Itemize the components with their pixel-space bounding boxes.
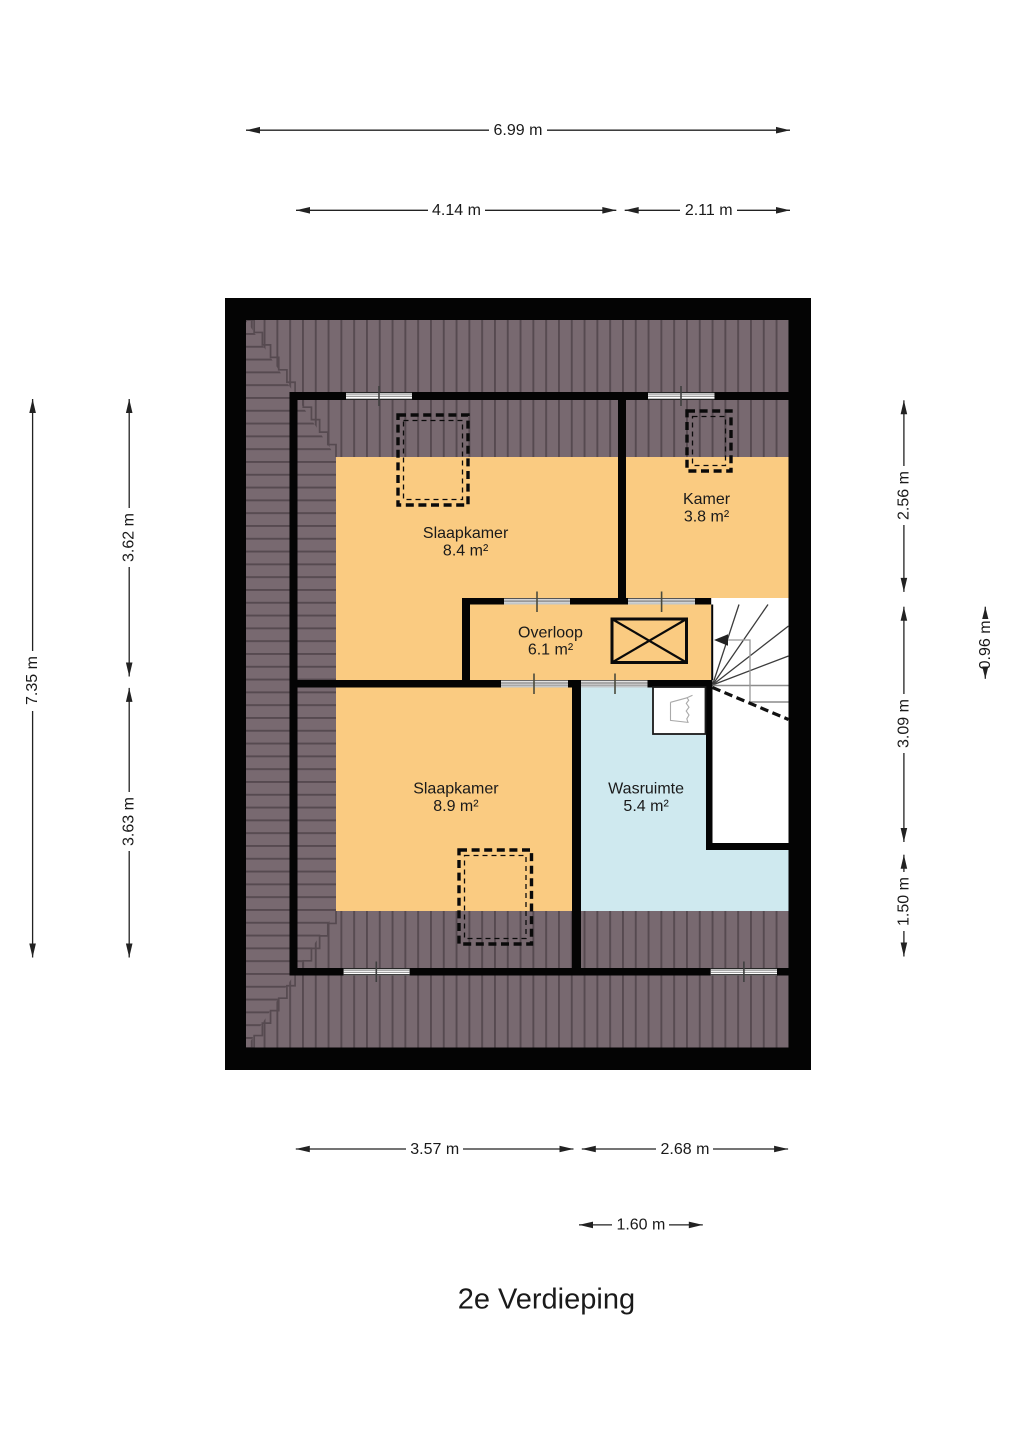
svg-text:3.62 m: 3.62 m	[121, 513, 138, 562]
svg-text:1.60 m: 1.60 m	[616, 1217, 665, 1234]
svg-text:4.14 m: 4.14 m	[432, 202, 481, 219]
svg-text:Wasruimte: Wasruimte	[608, 781, 684, 798]
svg-text:8.9 m²: 8.9 m²	[433, 798, 479, 815]
svg-text:5.4 m²: 5.4 m²	[623, 798, 669, 815]
svg-text:6.99 m: 6.99 m	[494, 122, 543, 139]
svg-text:7.35 m: 7.35 m	[24, 656, 41, 705]
svg-text:1.50 m: 1.50 m	[895, 877, 912, 926]
svg-text:6.1 m²: 6.1 m²	[528, 642, 574, 659]
svg-text:3.09 m: 3.09 m	[895, 699, 912, 748]
svg-text:0.96 m: 0.96 m	[977, 620, 994, 669]
svg-text:2.68 m: 2.68 m	[661, 1141, 710, 1158]
svg-text:Kamer: Kamer	[683, 491, 731, 508]
svg-text:3.57 m: 3.57 m	[410, 1141, 459, 1158]
svg-text:3.8 m²: 3.8 m²	[684, 509, 730, 526]
svg-text:Slaapkamer: Slaapkamer	[423, 525, 509, 542]
svg-text:Overloop: Overloop	[518, 625, 583, 642]
svg-text:Slaapkamer: Slaapkamer	[413, 781, 499, 798]
svg-text:2e Verdieping: 2e Verdieping	[458, 1284, 635, 1316]
svg-text:3.63 m: 3.63 m	[121, 797, 138, 846]
svg-text:2.11 m: 2.11 m	[685, 202, 733, 219]
svg-text:8.4 m²: 8.4 m²	[443, 543, 489, 560]
svg-text:2.56 m: 2.56 m	[895, 471, 912, 520]
